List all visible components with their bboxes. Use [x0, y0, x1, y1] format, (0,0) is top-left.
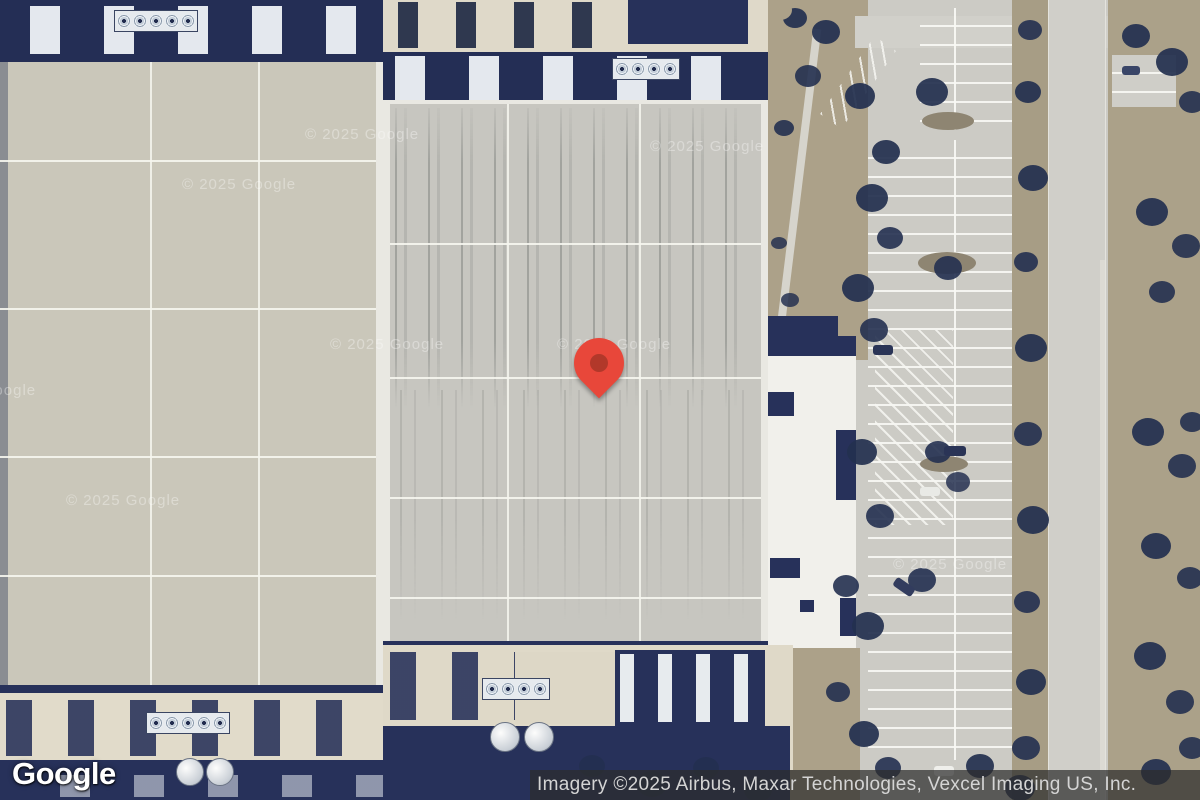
planter-island	[920, 456, 968, 472]
car	[1122, 66, 1140, 75]
attribution-bar: Imagery ©2025 Airbus, Maxar Technologies…	[530, 770, 1200, 800]
fan-icon	[213, 716, 227, 730]
cooling-fan-array	[146, 712, 230, 734]
roof-seam	[0, 308, 383, 310]
google-watermark: © 2025 Google	[66, 492, 180, 509]
rooftop-unit	[836, 430, 856, 500]
fan-icon	[197, 716, 211, 730]
storage-tank	[490, 722, 520, 752]
google-watermark: © 2025 Google	[0, 382, 36, 399]
fan-icon	[181, 716, 195, 730]
fan-icon	[133, 14, 147, 28]
google-watermark: © 2025 Google	[305, 126, 419, 143]
storage-tank	[206, 758, 234, 786]
fan-icon	[165, 716, 179, 730]
fan-icon	[631, 62, 645, 76]
fan-icon	[149, 716, 163, 730]
planter-island	[918, 252, 976, 274]
roof-parapet	[383, 100, 768, 104]
equipment-units-row	[395, 56, 755, 100]
roof-seam	[258, 62, 260, 688]
roof-seam	[0, 456, 383, 458]
fan-icon	[165, 14, 179, 28]
cooling-fan-array	[612, 58, 680, 80]
roof-stain-streaks	[400, 390, 750, 620]
office-roof-dark-section	[826, 336, 856, 358]
fan-icon	[181, 14, 195, 28]
google-watermark: © 2025 Google	[182, 176, 296, 193]
storage-tank	[176, 758, 204, 786]
attribution-text: Imagery ©2025 Airbus, Maxar Technologies…	[537, 774, 1136, 796]
roof-parapet	[376, 62, 383, 688]
google-watermark: © 2025 Google	[650, 138, 764, 155]
rooftop-unit	[800, 600, 814, 612]
map-pin[interactable]	[574, 338, 624, 388]
tree-cluster	[768, 0, 792, 20]
sidewalk	[1100, 260, 1105, 800]
car	[873, 345, 893, 355]
parking-stripes-stub	[1112, 55, 1176, 107]
google-logo[interactable]: Google	[12, 756, 116, 792]
map-canvas[interactable]: © 2025 Google © 2025 Google © 2025 Googl…	[0, 0, 1200, 800]
parking-hatched-area	[875, 330, 953, 525]
car	[920, 487, 940, 496]
fan-icon	[615, 62, 629, 76]
fan-icon	[501, 682, 515, 696]
fan-icon	[485, 682, 499, 696]
car	[944, 446, 966, 456]
cooling-fan-array	[482, 678, 550, 700]
roof-seam	[390, 597, 761, 599]
equipment-units-row	[620, 654, 760, 722]
fan-icon	[533, 682, 547, 696]
roof-seam	[390, 243, 761, 245]
roof-seam	[0, 575, 383, 577]
google-watermark: © 2025 Google	[893, 556, 1007, 573]
grass-verge-right	[1108, 0, 1200, 800]
map-pin-dot	[590, 354, 608, 372]
rooftop-unit	[770, 558, 800, 578]
fan-icon	[149, 14, 163, 28]
roof-seam	[390, 497, 761, 499]
rooftop-units-dark	[398, 2, 628, 48]
storage-tank	[524, 722, 554, 752]
google-watermark: © 2025 Google	[330, 336, 444, 353]
rooftop-dark-block	[628, 0, 748, 44]
rooftop-unit	[768, 392, 794, 416]
roof-seam	[639, 104, 641, 645]
roof-seam	[0, 160, 383, 162]
fan-icon	[117, 14, 131, 28]
planter-island	[922, 112, 974, 130]
road-vertical	[1048, 0, 1106, 800]
rooftop-unit	[840, 598, 856, 636]
roof-seam	[150, 62, 152, 688]
parking-stripes-top	[920, 8, 1012, 130]
roof-edge-shadow	[0, 62, 8, 688]
cooling-fan-array	[114, 10, 198, 32]
fan-icon	[517, 682, 531, 696]
fan-icon	[663, 62, 677, 76]
fan-icon	[647, 62, 661, 76]
roof-parapet	[761, 100, 768, 645]
roof-seam	[507, 104, 509, 645]
landscaped-median	[1012, 0, 1050, 800]
roof-parapet	[383, 100, 390, 645]
building-roof-left	[0, 62, 383, 688]
